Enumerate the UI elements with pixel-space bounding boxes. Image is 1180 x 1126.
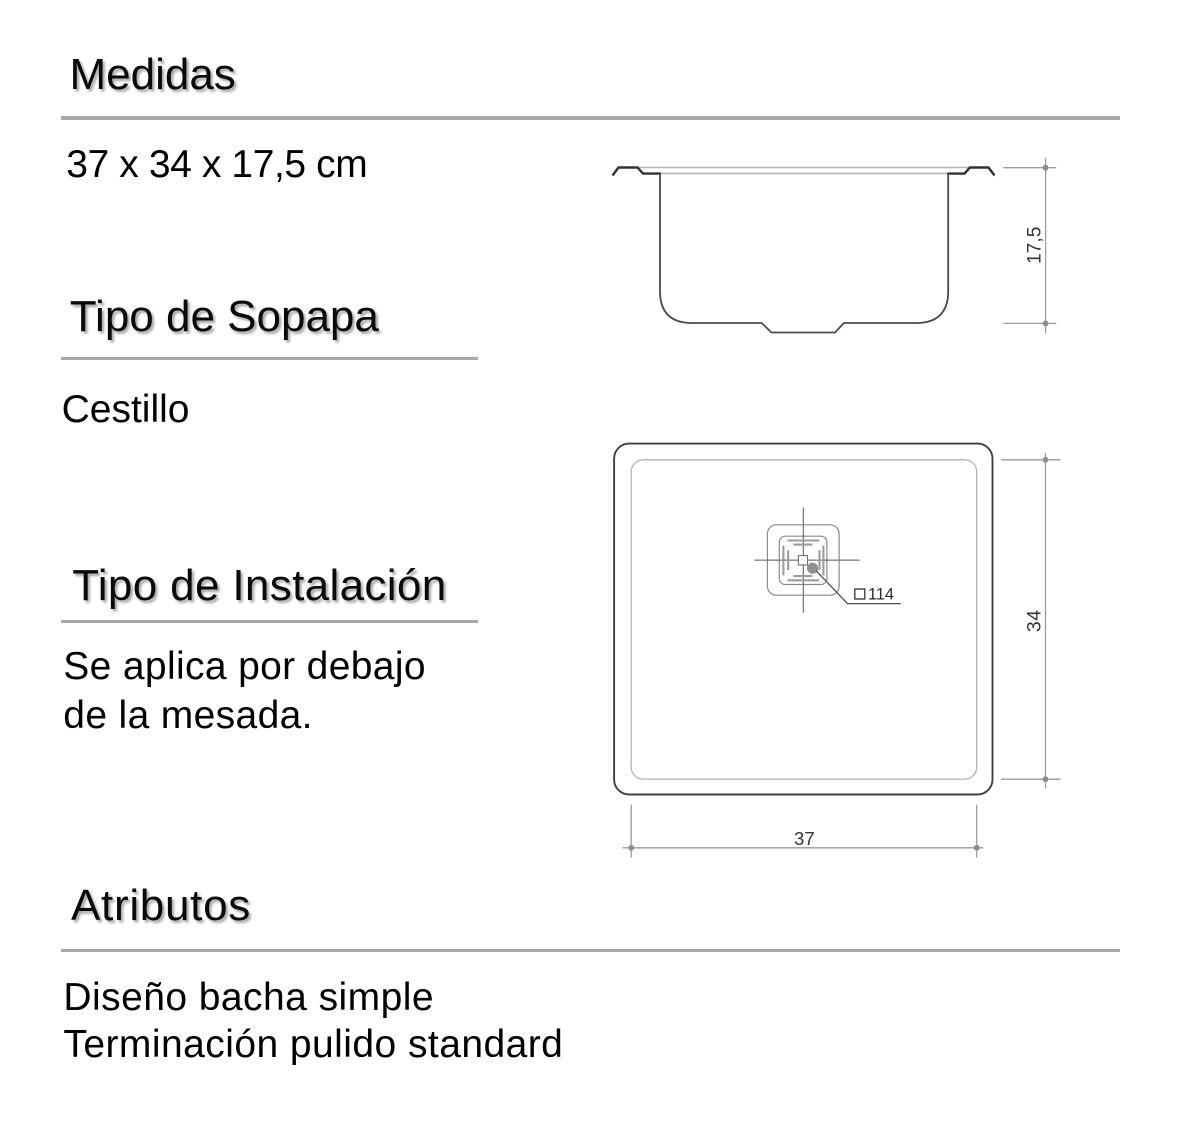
svg-text:114: 114 [868, 586, 894, 604]
svg-text:37: 37 [794, 828, 815, 849]
svg-text:17,5: 17,5 [1024, 227, 1045, 264]
svg-text:34: 34 [1023, 609, 1045, 632]
